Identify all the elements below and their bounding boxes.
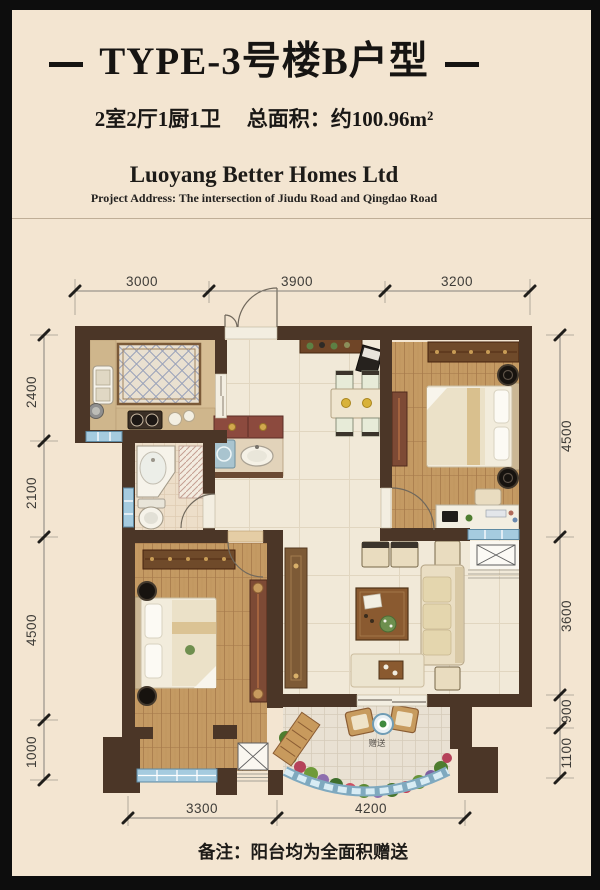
dim-top-2: 3900 [281, 274, 313, 289]
dim-right-1: 4500 [559, 420, 574, 452]
dim-left-1: 2400 [24, 376, 39, 408]
dining-table [331, 389, 384, 418]
desk-phone [442, 511, 458, 522]
pillow [145, 644, 162, 678]
master-door [381, 488, 391, 528]
bedside-table [498, 365, 518, 385]
dimension-top: 3000 3900 3200 [70, 274, 535, 315]
chaise [435, 541, 460, 567]
entry-door-arc [238, 288, 277, 327]
balcony-chair [389, 705, 419, 733]
bathroom-door [203, 494, 215, 528]
entry-threshold [225, 327, 277, 339]
dim-bottom-2: 4200 [355, 801, 387, 816]
kitchen-rug [118, 344, 200, 404]
dim-right-3: 900 [559, 699, 574, 723]
dimension-bottom: 3300 4200 [123, 796, 470, 826]
dim-left-4: 1000 [24, 736, 39, 768]
pillow [494, 390, 509, 423]
kitchen [89, 340, 216, 432]
balcony-gift-label: 赠送 [368, 738, 386, 748]
bathroom-window [124, 488, 134, 527]
ottoman [475, 489, 501, 505]
pillow [494, 427, 509, 460]
dim-top-3: 3200 [441, 274, 473, 289]
kitchen-bowl [184, 411, 195, 422]
bedside-table [138, 582, 156, 600]
armchair [435, 667, 460, 690]
corridor-floor [215, 478, 283, 532]
dim-right-4: 1100 [559, 737, 574, 768]
wash-nook [213, 416, 283, 478]
footer-note: 备注：阳台均为全面积赠送 [197, 842, 408, 862]
dimension-left: 2400 2100 4500 1000 [24, 330, 58, 785]
cabinet-knob [260, 424, 267, 431]
dim-top-1: 3000 [126, 274, 158, 289]
kitchen-window [86, 432, 122, 442]
dim-left-2: 2100 [24, 477, 39, 509]
balcony-chair [345, 708, 375, 737]
bedside-table [138, 687, 156, 705]
dim-bottom-1: 3300 [186, 801, 218, 816]
second-bedroom-door [228, 531, 263, 542]
tv-wall-panel [285, 548, 307, 688]
dim-right-2: 3600 [559, 600, 574, 632]
bedside-table [498, 468, 518, 488]
flyer-root: TYPE-3号楼B户型 2室2厅1厨1卫 总面积：约100.96m² Luoya… [0, 0, 600, 890]
master-bay-window [468, 530, 519, 540]
dim-left-3: 4500 [24, 614, 39, 646]
kitchen-bowl [169, 413, 182, 426]
floor-plan: 赠送 [0, 0, 600, 890]
dimension-right: 4500 3600 900 1100 [546, 330, 574, 783]
tea-set [380, 616, 396, 632]
pillow [145, 604, 162, 638]
cabinet-knob [229, 424, 236, 431]
